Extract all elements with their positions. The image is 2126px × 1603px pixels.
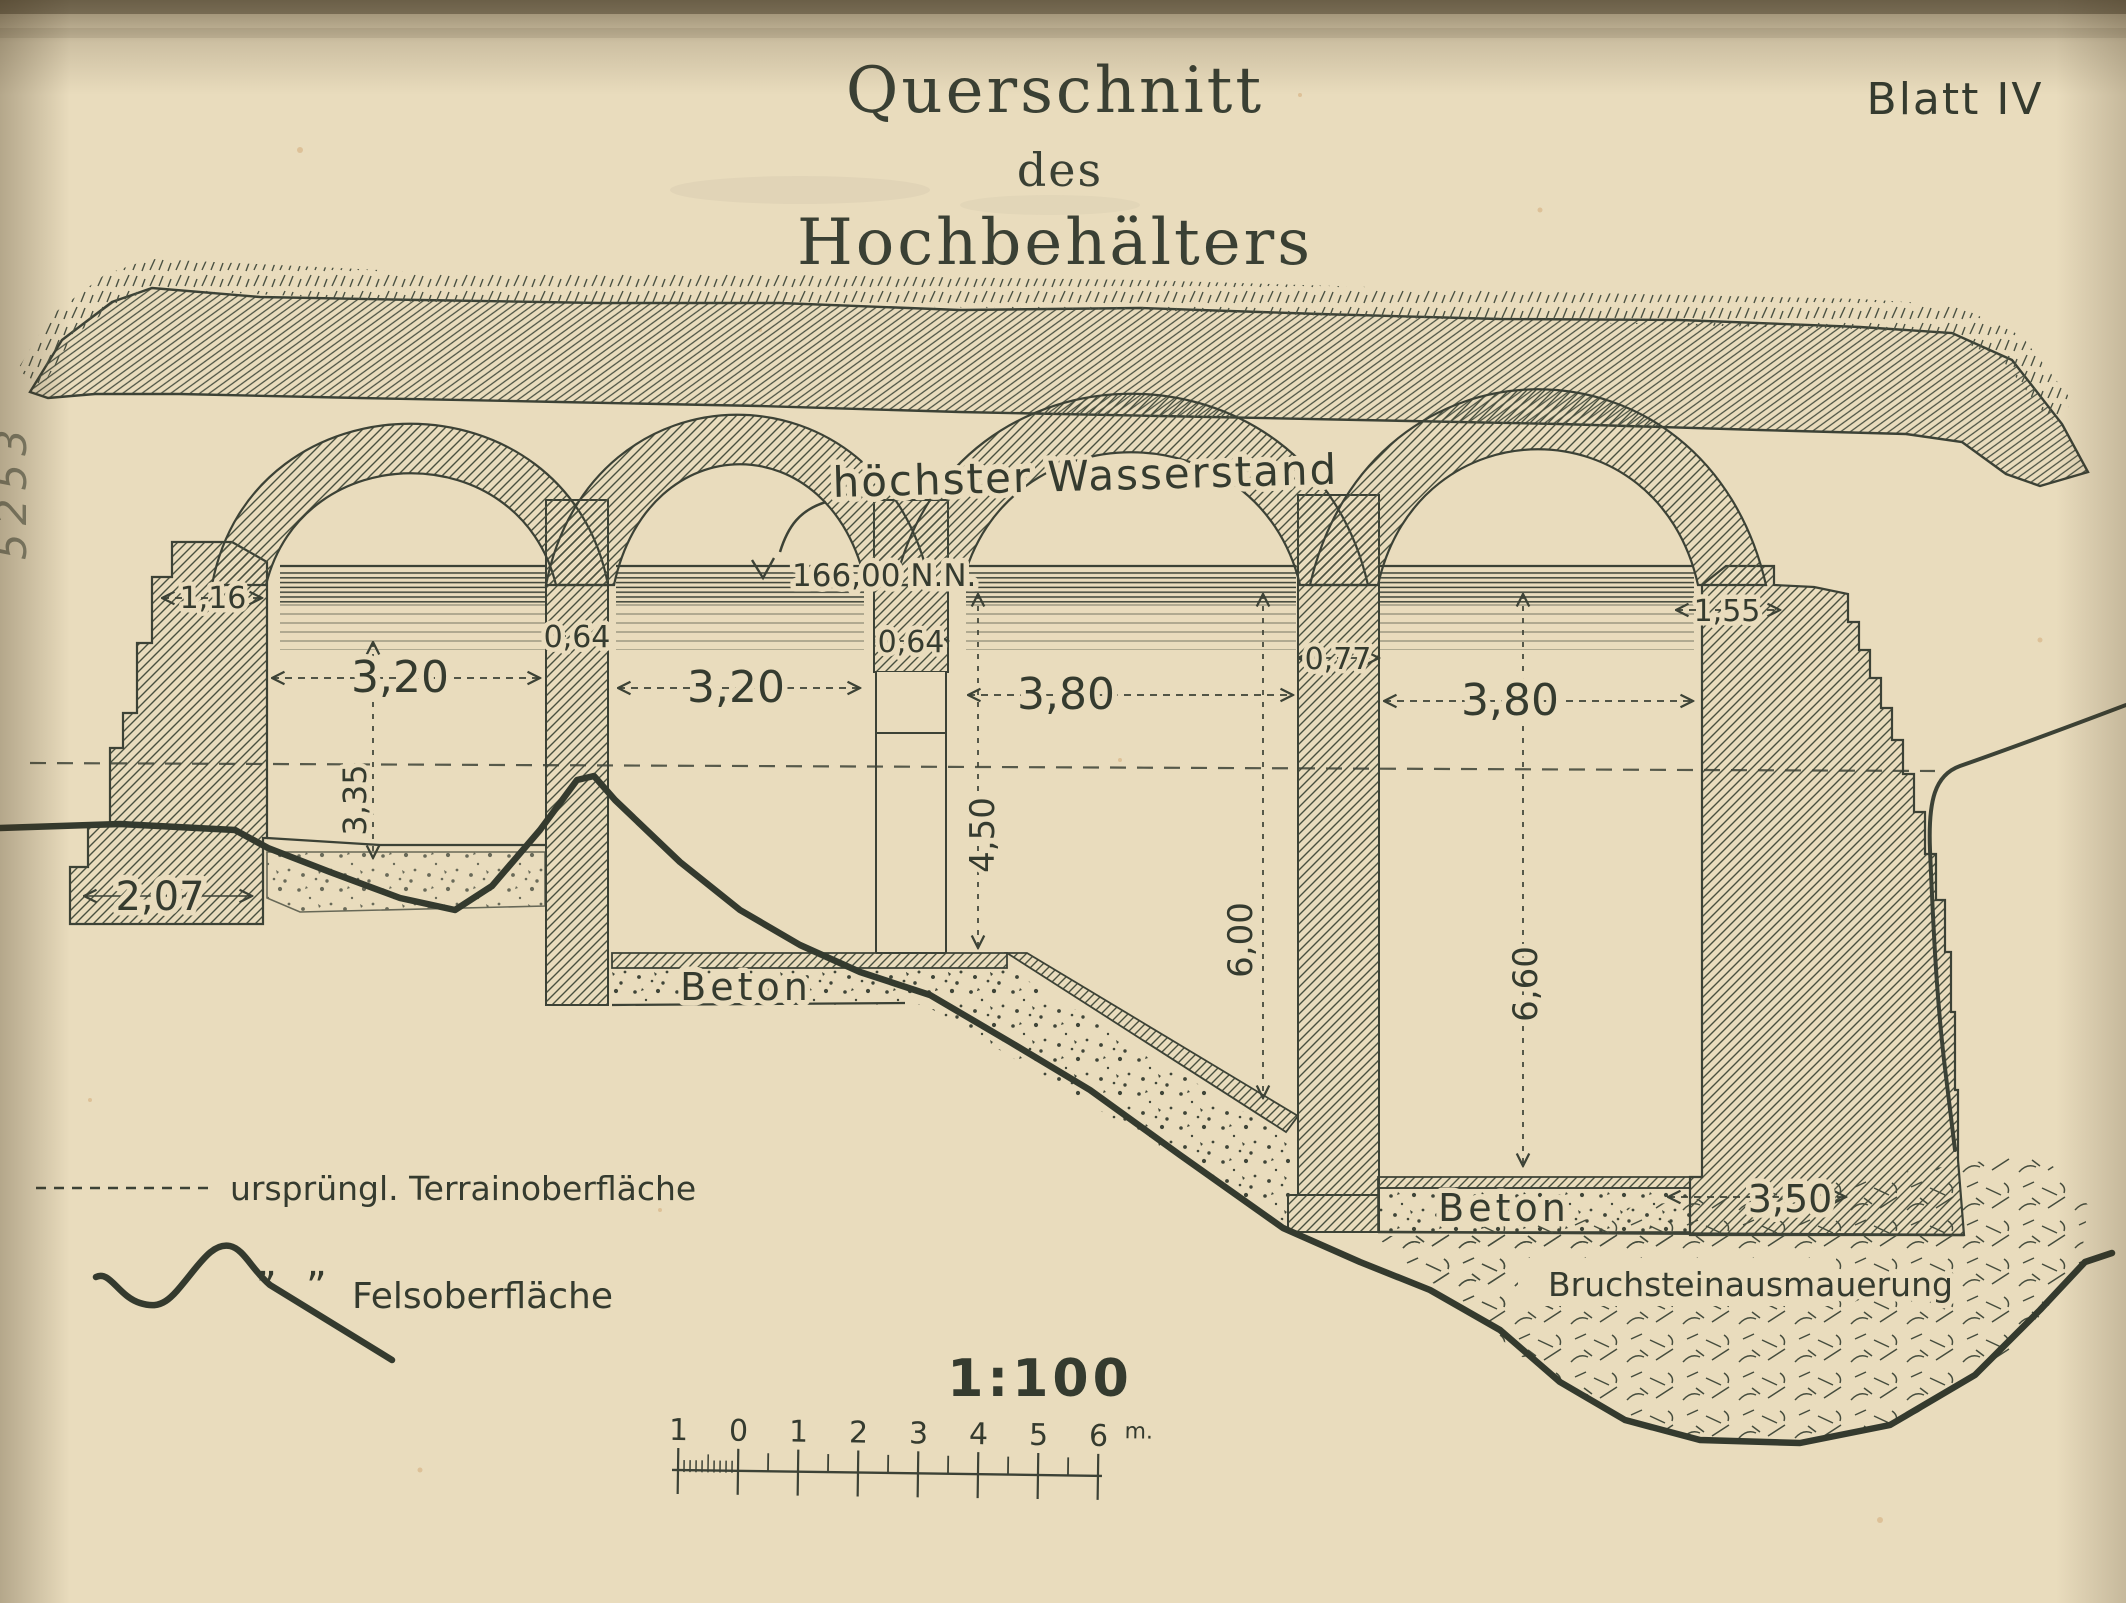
cross-section-drawing: 1,16 3,20 0,64 3,20 0,64 3,80 0,77 3,80 … xyxy=(0,0,2126,1603)
dim-chamber3-depth: 6,00 xyxy=(1221,902,1261,978)
pencil-smudge xyxy=(670,176,930,204)
scale-tick-7: 6 xyxy=(1089,1419,1109,1454)
page-title-line2: des xyxy=(1017,143,1103,197)
beton-label-left: Beton xyxy=(680,965,812,1009)
pier-3-footing xyxy=(1288,1195,1379,1232)
dim-pier2: 0,64 xyxy=(878,625,945,660)
dim-pier1: 0,64 xyxy=(544,620,611,655)
scale-tick-3: 2 xyxy=(849,1415,869,1450)
legend-terrain-label: ursprüngl. Terrainoberfläche xyxy=(230,1169,696,1208)
scale-tick-1: 0 xyxy=(729,1414,749,1449)
water-chamber-4 xyxy=(1380,566,1694,650)
dim-left-footing: 2,07 xyxy=(115,874,204,920)
dim-pier3: 0,77 xyxy=(1305,642,1372,677)
beton-label-right: Beton xyxy=(1438,1186,1570,1230)
water-chamber-3 xyxy=(966,566,1296,650)
scale-tick-4: 3 xyxy=(909,1416,929,1451)
dim-right-wall-top: 1,55 xyxy=(1694,594,1761,629)
dim-right-footing: 3,50 xyxy=(1748,1177,1833,1221)
dim-left-wall-top: 1,16 xyxy=(180,581,247,616)
dim-chamber4-width: 3,80 xyxy=(1461,675,1559,726)
legend-ditto-left: ” xyxy=(256,1264,277,1310)
scale-tick-5: 4 xyxy=(969,1417,989,1452)
legend-rock-label: Felsoberfläche xyxy=(352,1276,613,1317)
scale-unit: m. xyxy=(1124,1419,1153,1444)
dim-chamber1-depth: 3,35 xyxy=(336,764,374,835)
dim-chamber2-width: 3,20 xyxy=(687,662,785,713)
pier-2-shaft xyxy=(876,672,946,953)
scanned-drawing-page: 1,16 3,20 0,64 3,20 0,64 3,80 0,77 3,80 … xyxy=(0,0,2126,1603)
dim-chamber2-depth: 4,50 xyxy=(963,797,1003,873)
dim-chamber1-width: 3,20 xyxy=(351,652,449,703)
water-level-value: 166,00 N.N. xyxy=(792,558,976,594)
dim-chamber4-depth: 6,60 xyxy=(1506,946,1546,1022)
pier-3 xyxy=(1298,495,1379,1195)
water-surfaces xyxy=(280,566,1694,650)
legend-ditto-right: ” xyxy=(306,1264,327,1310)
scale-tick-0: 1 xyxy=(669,1413,689,1448)
scale-tick-6: 5 xyxy=(1029,1418,1049,1453)
water-chamber-1 xyxy=(280,566,545,650)
rubble-masonry-label: Bruchsteinausmauerung xyxy=(1548,1265,1953,1304)
dim-chamber3-width: 3,80 xyxy=(1017,669,1115,720)
page-title-line3: Hochbehälters xyxy=(797,206,1313,280)
scale-tick-2: 1 xyxy=(789,1415,809,1450)
scale-ratio: 1:100 xyxy=(947,1349,1133,1409)
